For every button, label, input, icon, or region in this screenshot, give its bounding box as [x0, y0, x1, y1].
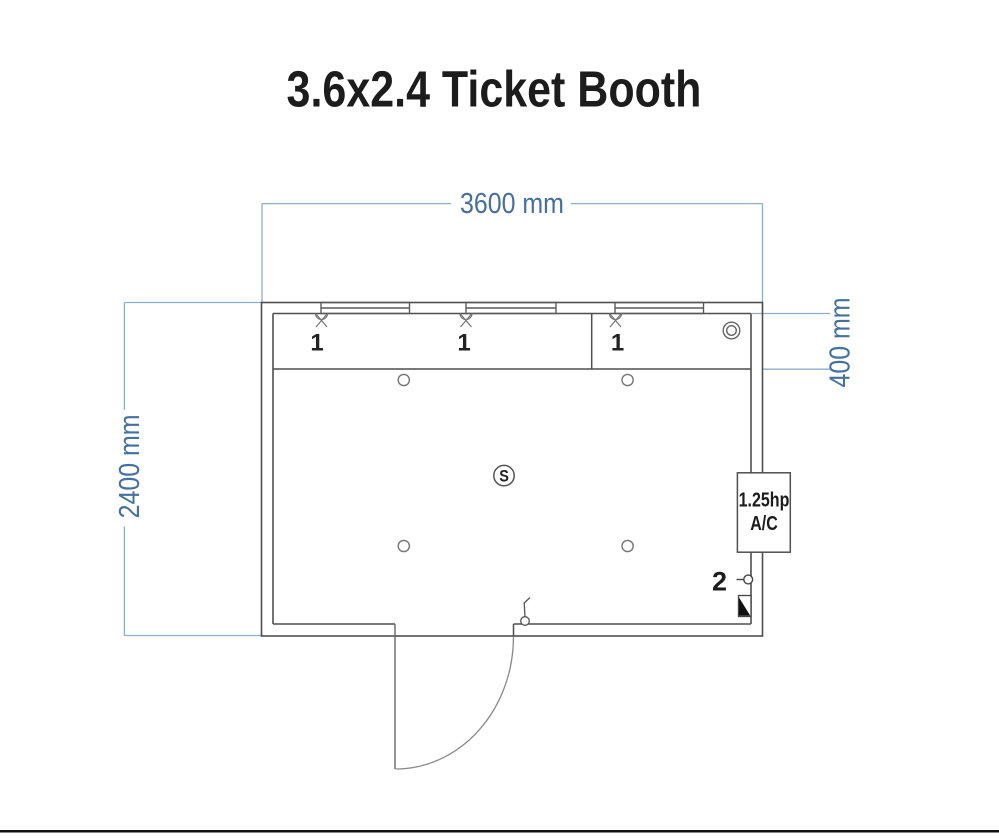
svg-text:1: 1 [611, 330, 624, 357]
svg-text:400 mm: 400 mm [824, 297, 856, 387]
svg-text:S: S [499, 468, 509, 486]
svg-text:3.6x2.4 Ticket Booth: 3.6x2.4 Ticket Booth [287, 60, 702, 117]
svg-text:2400 mm: 2400 mm [113, 414, 145, 518]
svg-text:A/C: A/C [750, 512, 778, 534]
svg-text:1: 1 [457, 330, 470, 357]
svg-text:1.25hp: 1.25hp [739, 489, 790, 511]
svg-text:3600 mm: 3600 mm [460, 187, 564, 219]
svg-text:1: 1 [310, 330, 323, 357]
svg-text:2: 2 [712, 567, 727, 597]
